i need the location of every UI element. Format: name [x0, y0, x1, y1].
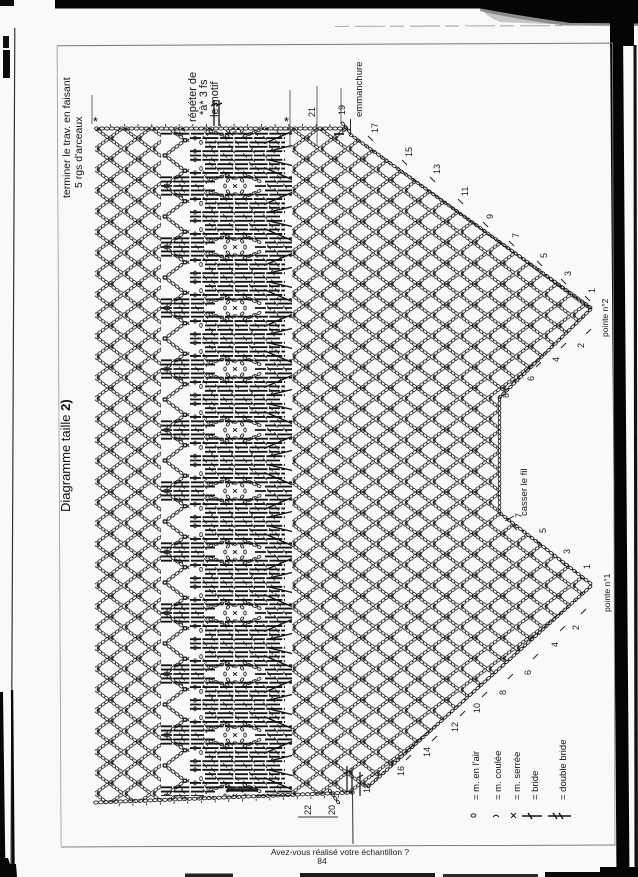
svg-text:3: 3: [562, 549, 572, 554]
svg-text:84: 84: [317, 856, 327, 866]
svg-text:18: 18: [362, 783, 372, 793]
svg-text:pointe n°2: pointe n°2: [600, 298, 610, 337]
svg-text:8: 8: [498, 690, 508, 695]
svg-text:13: 13: [432, 164, 442, 174]
svg-text:*: *: [284, 115, 289, 129]
svg-text:*: *: [93, 115, 98, 129]
svg-text:5 rgs d'arceaux: 5 rgs d'arceaux: [73, 116, 85, 188]
svg-text:= m. coulée: = m. coulée: [493, 751, 504, 800]
svg-text:17: 17: [370, 123, 380, 133]
svg-text:emmanchure: emmanchure: [354, 62, 365, 117]
svg-text:pointe n°1: pointe n°1: [602, 573, 612, 612]
svg-text:= m. serrée: = m. serrée: [512, 752, 523, 800]
svg-text:20: 20: [327, 805, 337, 815]
svg-text:5: 5: [538, 528, 548, 533]
svg-text:casser le fil: casser le fil: [519, 468, 530, 516]
svg-text:12: 12: [450, 722, 460, 732]
svg-text:5: 5: [539, 253, 549, 258]
svg-text:1: 1: [582, 564, 592, 569]
svg-text:8: 8: [501, 393, 511, 398]
svg-text:4: 4: [551, 357, 561, 362]
svg-text:Avez-vous réalisé votre échant: Avez-vous réalisé votre échantillon ?: [271, 847, 410, 857]
svg-text:= double bride: = double bride: [558, 740, 569, 800]
svg-text:6: 6: [523, 670, 533, 675]
svg-text:terminer le trav. en faisant: terminer le trav. en faisant: [61, 77, 73, 198]
svg-text:= bride: = bride: [530, 771, 541, 800]
svg-text:15: 15: [404, 147, 414, 157]
svg-text:2: 2: [571, 625, 581, 630]
svg-text:3: 3: [563, 271, 573, 276]
svg-text:10: 10: [472, 703, 482, 713]
svg-text:19: 19: [337, 105, 347, 115]
svg-text:4: 4: [550, 642, 560, 647]
svg-text:1: 1: [587, 288, 597, 293]
svg-text:2: 2: [576, 343, 586, 348]
svg-text:14: 14: [422, 747, 432, 757]
svg-text:21: 21: [307, 107, 317, 117]
svg-text:7: 7: [511, 233, 521, 238]
svg-text:22: 22: [303, 805, 313, 815]
svg-text:11: 11: [460, 187, 470, 196]
svg-text:16: 16: [396, 766, 406, 776]
svg-text:= m. en l'air: = m. en l'air: [471, 751, 482, 800]
svg-text:6: 6: [526, 376, 536, 381]
svg-text:9: 9: [485, 214, 495, 219]
svg-text:Diagramme taille 2): Diagramme taille 2): [58, 399, 73, 512]
